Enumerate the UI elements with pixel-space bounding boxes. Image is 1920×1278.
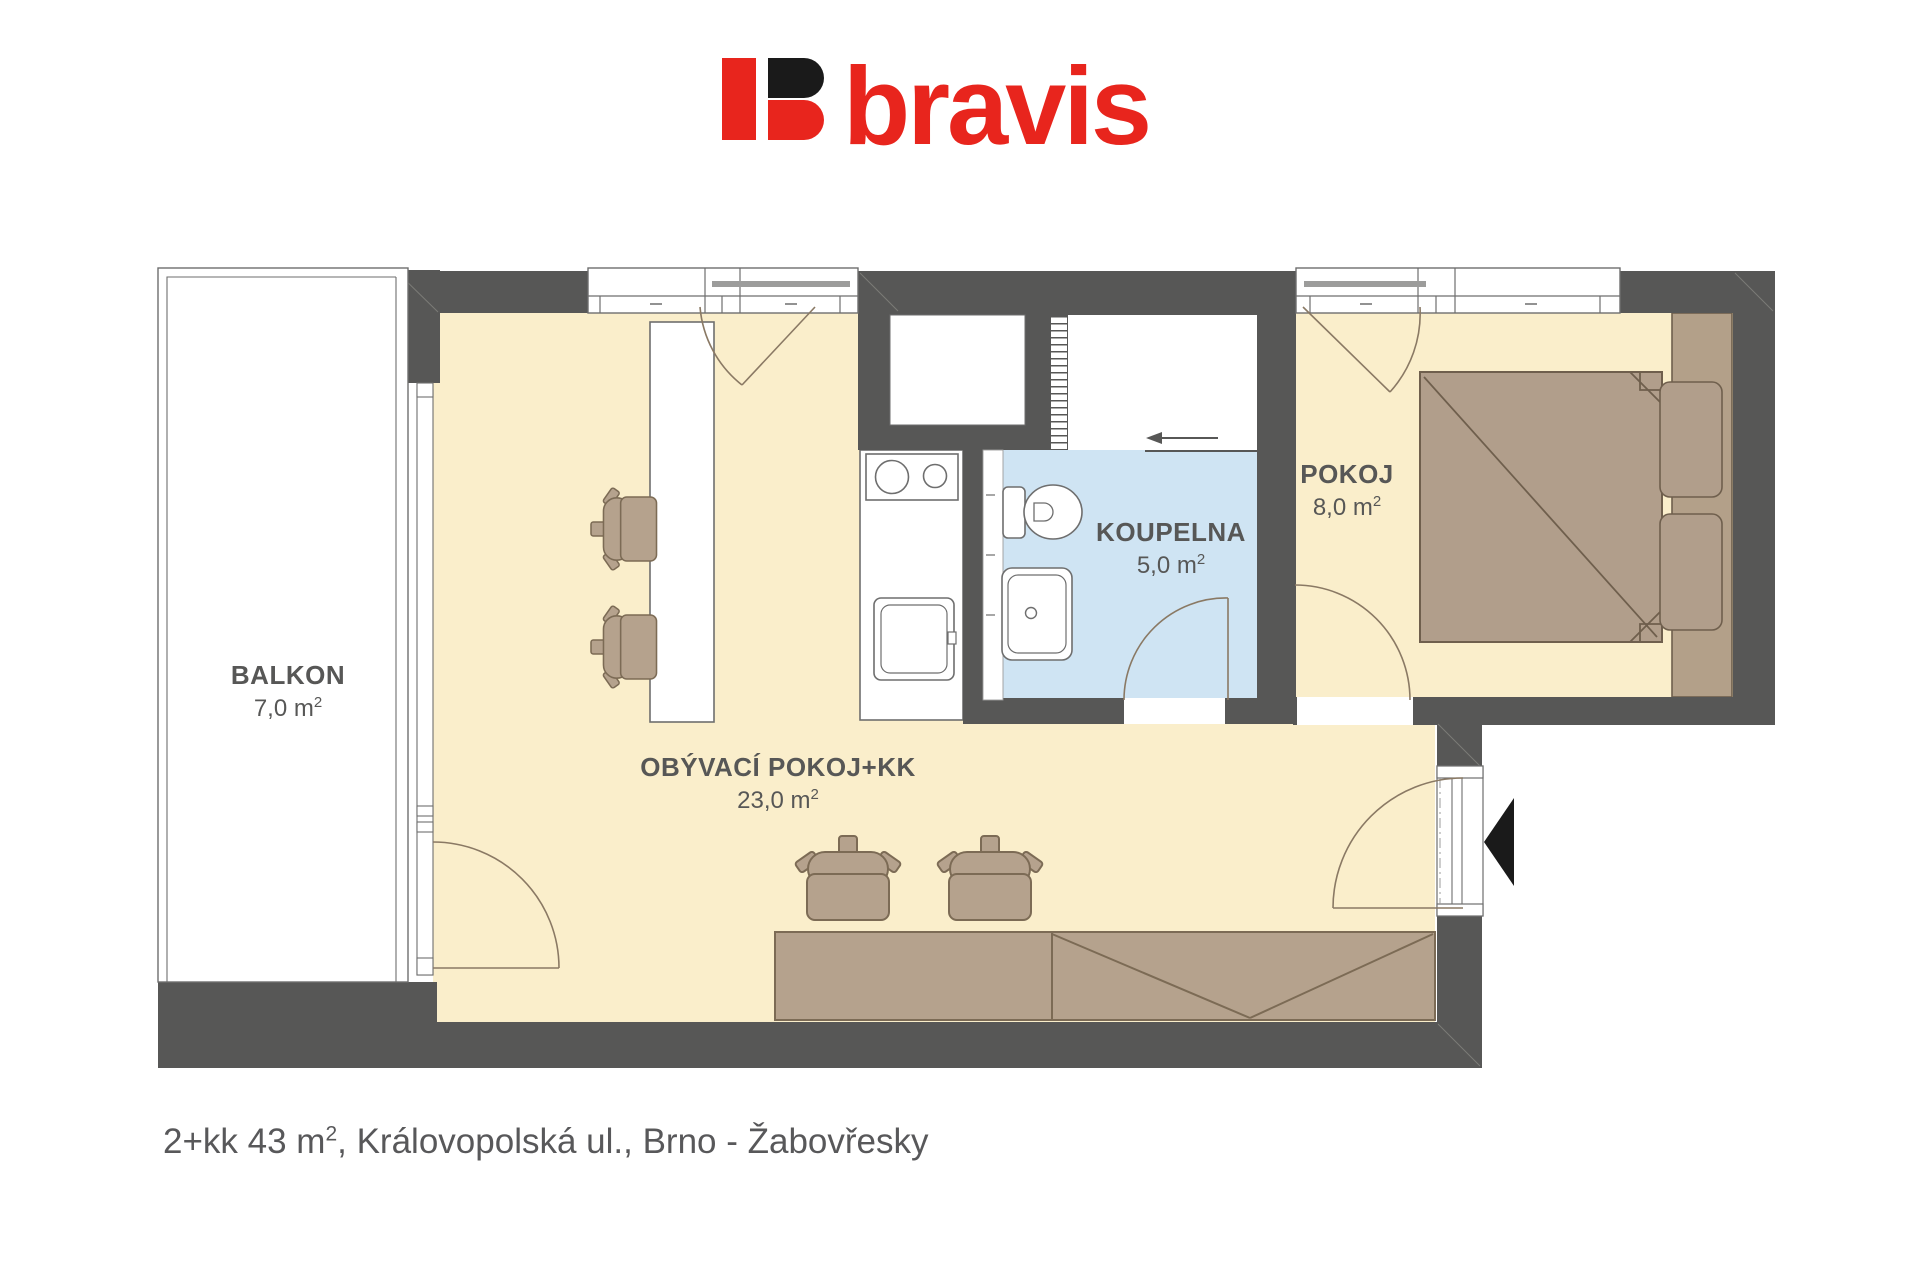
kitchen-bar-column xyxy=(650,322,714,722)
room-name: POKOJ xyxy=(1300,459,1394,490)
balcony-railing xyxy=(158,268,408,982)
balcony-glazing xyxy=(417,383,433,975)
room-name: BALKON xyxy=(231,660,345,691)
cooktop xyxy=(866,454,958,500)
room-area: 8,0 m2 xyxy=(1300,493,1394,522)
floorplan-drawing xyxy=(0,0,1920,1278)
radiator-icon xyxy=(1050,315,1068,450)
bedroom-doorway xyxy=(1297,697,1413,725)
room-area: 7,0 m2 xyxy=(231,694,345,723)
living-room-window xyxy=(588,268,858,313)
pillow xyxy=(1660,514,1722,630)
room-label-pokoj: POKOJ 8,0 m2 xyxy=(1300,459,1394,522)
floorplan-page: bravis xyxy=(0,0,1920,1278)
bed xyxy=(1420,372,1662,642)
shaft-niche xyxy=(890,315,1025,425)
sofa-bed xyxy=(1052,932,1435,1020)
pillow xyxy=(1660,382,1722,497)
entrance-marker-icon xyxy=(1484,798,1514,886)
room-area: 23,0 m2 xyxy=(640,786,916,815)
room-label-obyvaci-pokoj: OBÝVACÍ POKOJ+KK 23,0 m2 xyxy=(640,752,916,815)
bathroom-doorway xyxy=(1124,698,1225,724)
room-name: OBÝVACÍ POKOJ+KK xyxy=(640,752,916,783)
toilet xyxy=(1003,485,1082,539)
washbasin xyxy=(1002,568,1072,660)
kitchen-sink xyxy=(874,598,956,680)
bedside-ledge xyxy=(1672,313,1732,697)
listing-caption: 2+kk 43 m2, Královopolská ul., Brno - Ža… xyxy=(163,1122,929,1162)
dining-table xyxy=(775,932,1052,1020)
installation-shaft-strip xyxy=(983,450,1003,700)
sliding-closet-niche xyxy=(1068,315,1257,451)
room-label-koupelna: KOUPELNA 5,0 m2 xyxy=(1096,517,1246,580)
room-label-balkon: BALKON 7,0 m2 xyxy=(231,660,345,723)
room-area: 5,0 m2 xyxy=(1096,551,1246,580)
bedroom-window xyxy=(1296,268,1620,313)
room-name: KOUPELNA xyxy=(1096,517,1246,548)
